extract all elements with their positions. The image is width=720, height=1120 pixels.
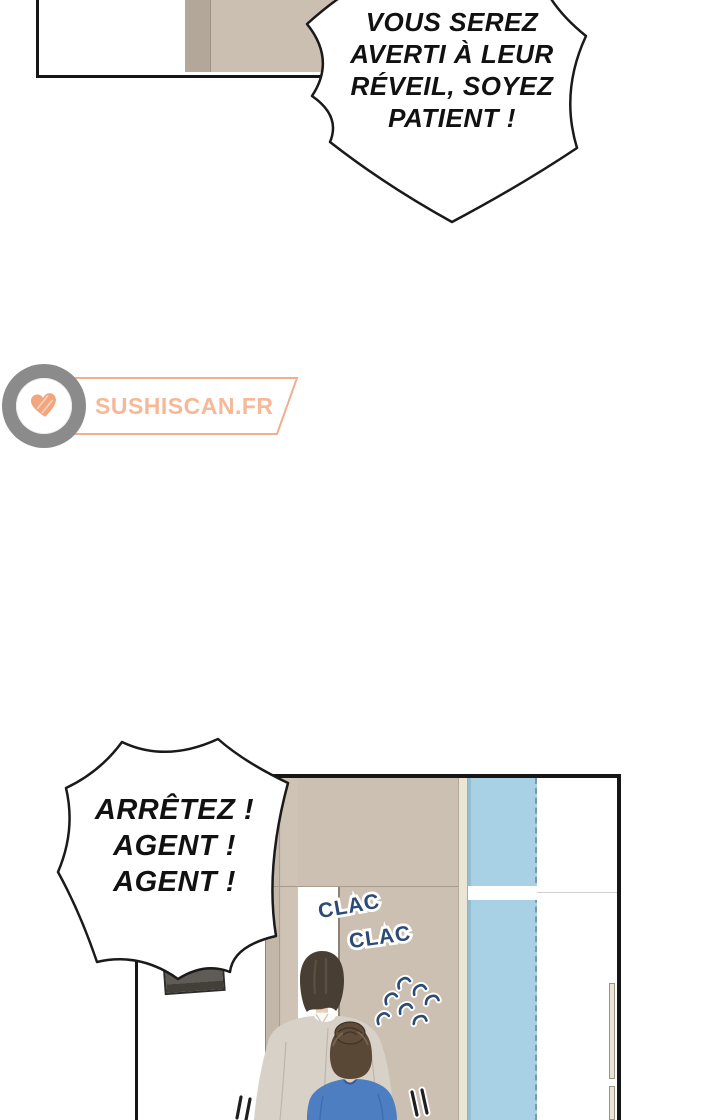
bubble-line: AGENT ! xyxy=(92,828,257,864)
window-crossbar xyxy=(468,886,537,900)
bubble-line: AVERTI À LEUR xyxy=(332,38,572,70)
watermark-site-label: SUSHISCAN.FR xyxy=(95,384,265,428)
wall-seam-line xyxy=(537,892,617,893)
bubble-line: VOUS SEREZ xyxy=(332,6,572,38)
motion-scribble-icon xyxy=(375,976,439,1024)
sfx-clac-1: CLAC xyxy=(318,890,382,923)
window-glass xyxy=(468,778,537,1120)
comic-page: VOUS SEREZ AVERTI À LEUR RÉVEIL, SOYEZ P… xyxy=(0,0,720,1120)
door-jamb-detail xyxy=(609,1086,615,1120)
bubble-line: ARRÊTEZ ! xyxy=(92,792,257,828)
sushi-roll-logo-icon xyxy=(2,364,86,448)
man-hair xyxy=(300,951,344,1012)
sushi-roll-center xyxy=(16,378,72,434)
speech-bubble-top-text: VOUS SEREZ AVERTI À LEUR RÉVEIL, SOYEZ P… xyxy=(332,6,572,134)
bubble-line: AGENT ! xyxy=(92,864,257,900)
speech-bubble-bottom-text: ARRÊTEZ ! AGENT ! AGENT ! xyxy=(92,792,257,900)
heart-icon xyxy=(28,391,61,421)
bubble-line: RÉVEIL, SOYEZ xyxy=(332,70,572,102)
door-jamb-detail xyxy=(609,983,615,1079)
wall-strip-dark xyxy=(185,0,210,72)
bubble-line: PATIENT ! xyxy=(332,102,572,134)
